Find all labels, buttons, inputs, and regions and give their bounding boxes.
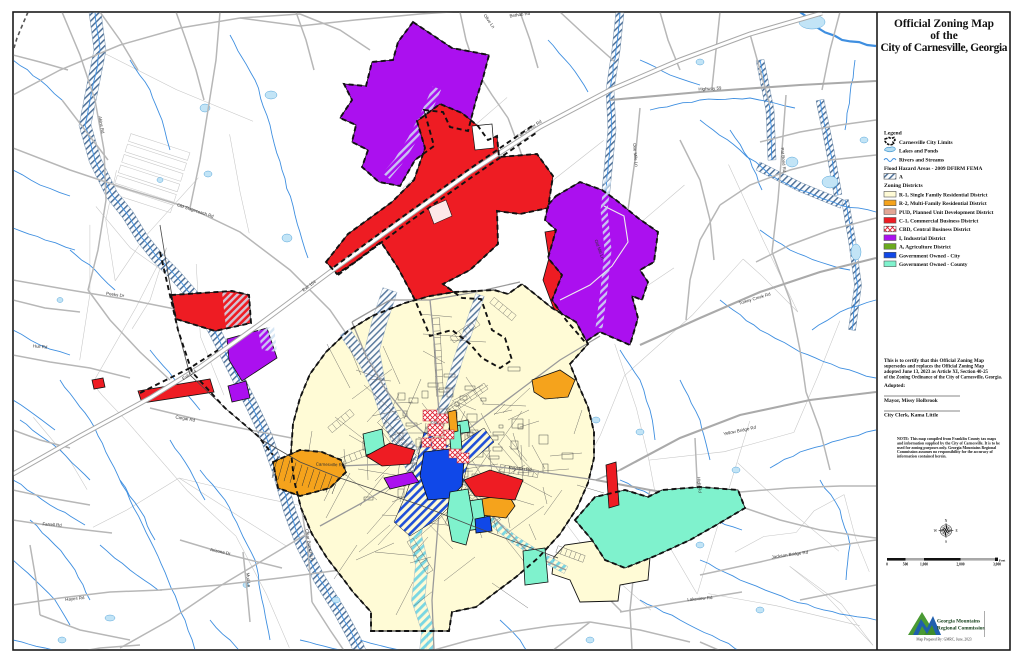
svg-text:Commission assumes no responsi: Commission assumes no responsibility for… — [897, 450, 993, 454]
svg-text:Government Owned - County: Government Owned - County — [899, 262, 968, 268]
svg-text:information contained herein.: information contained herein. — [897, 455, 947, 459]
svg-text:City Clerk, Kama Little: City Clerk, Kama Little — [884, 413, 939, 419]
svg-text:NOTE: This map compiled from: NOTE: This map compiled from Franklin Co… — [897, 437, 997, 441]
svg-text:Zoning Districts: Zoning Districts — [884, 183, 924, 189]
svg-text:500: 500 — [903, 563, 909, 567]
svg-text:Regional Commission: Regional Commission — [937, 626, 985, 632]
svg-text:Rivers and Streams: Rivers and Streams — [899, 158, 944, 164]
svg-text:City of Carnesville, Georgia: City of Carnesville, Georgia — [881, 42, 1008, 54]
svg-text:PUD, Planned Unit Development: PUD, Planned Unit Development District — [899, 210, 994, 216]
svg-text:Feet: Feet — [999, 559, 1006, 563]
svg-text:2,000: 2,000 — [956, 563, 964, 567]
svg-text:Mayor, Missy Holbrook: Mayor, Missy Holbrook — [884, 398, 938, 404]
svg-text:R-2, Multi-Family Residential: R-2, Multi-Family Residential District — [899, 201, 987, 207]
svg-text:of the Zoning Ordinance of the: of the Zoning Ordinance of the City of C… — [884, 375, 1003, 381]
svg-text:1,000: 1,000 — [920, 563, 928, 567]
svg-text:Carnesville Rd: Carnesville Rd — [316, 462, 345, 468]
svg-text:Lakes and Ponds: Lakes and Ponds — [899, 149, 938, 155]
svg-text:3,000: 3,000 — [993, 563, 1001, 567]
svg-text:and information supplied by: and information supplied by the City of … — [897, 441, 1000, 445]
svg-text:C-1, Commercial Business Distr: C-1, Commercial Business District — [899, 219, 978, 225]
svg-text:S: S — [945, 540, 947, 544]
svg-text:Georgia Mountains: Georgia Mountains — [937, 619, 980, 625]
svg-text:0: 0 — [886, 563, 888, 567]
svg-text:W: W — [934, 529, 938, 533]
svg-text:Government Owned - City: Government Owned - City — [899, 253, 961, 259]
svg-text:Official Zoning Map: Official Zoning Map — [894, 18, 994, 30]
svg-text:N: N — [945, 519, 948, 523]
svg-text:R-1, Single Family Residential: R-1, Single Family Residential District — [899, 192, 988, 198]
svg-text:CBD, Central Business District: CBD, Central Business District — [899, 227, 971, 233]
svg-text:of the: of the — [930, 30, 958, 42]
svg-text:Legend: Legend — [884, 131, 903, 137]
svg-text:used for zoning purposes only: used for zoning purposes only. Georgia M… — [897, 446, 997, 450]
svg-text:Carnesville City Limits: Carnesville City Limits — [899, 140, 953, 146]
svg-text:I, Industrial District: I, Industrial District — [899, 236, 946, 242]
svg-text:A, Agriculture District: A, Agriculture District — [899, 245, 951, 251]
svg-text:Flood Hazard Areas - 2009 DFIR: Flood Hazard Areas - 2009 DFIRM FEMA — [884, 166, 983, 172]
svg-text:A: A — [899, 175, 903, 181]
svg-text:Adopted:: Adopted: — [884, 383, 905, 389]
